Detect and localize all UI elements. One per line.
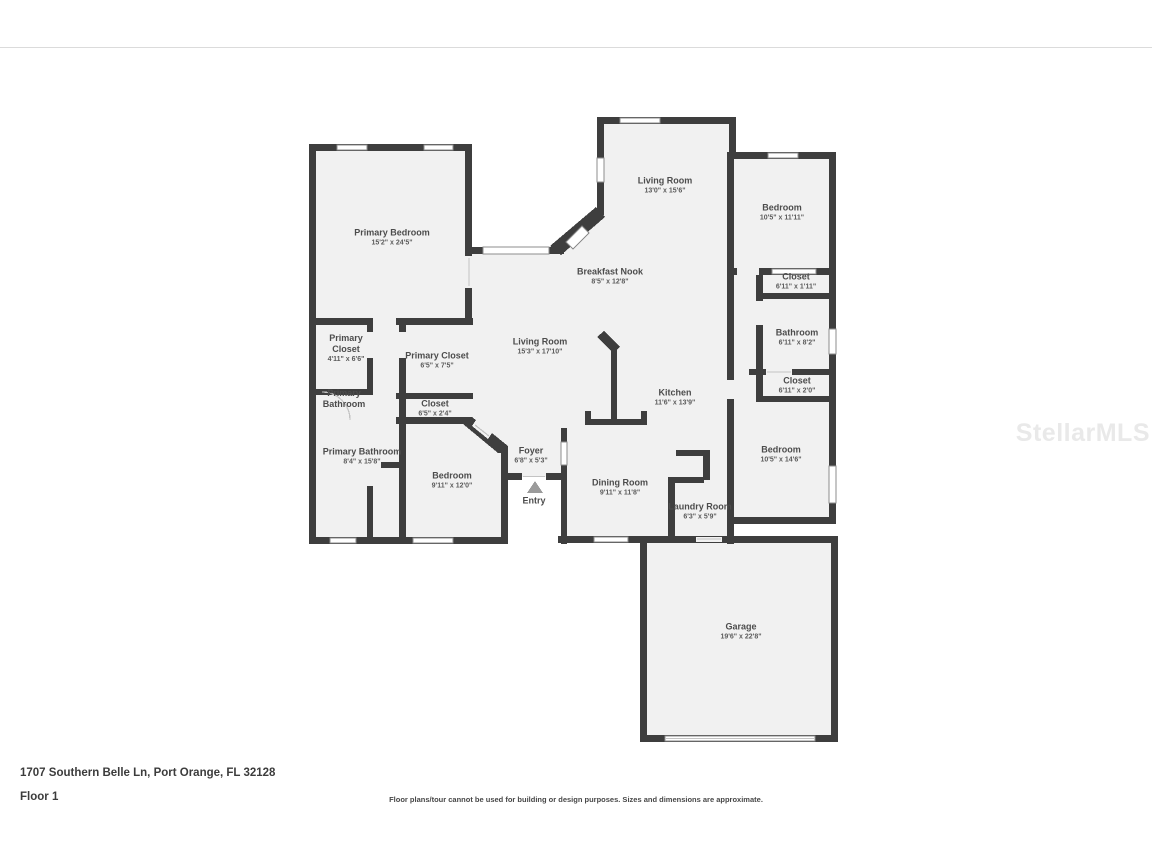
room-label-bedroom-top-right: Bedroom 10'5" x 11'11"	[760, 203, 804, 222]
address-text: 1707 Southern Belle Ln, Port Orange, FL …	[20, 767, 275, 779]
room-label-laundry-room: Laundry Room 6'3" x 5'9"	[668, 502, 732, 521]
floor-plan-drawing	[0, 0, 1152, 864]
room-label-bedroom-bottom: Bedroom 9'11" x 12'0"	[432, 471, 473, 490]
room-label-living-room-main: Living Room 15'3" x 17'10"	[513, 337, 568, 356]
room-label-primary-bedroom: Primary Bedroom 15'2" x 24'5"	[354, 228, 430, 247]
room-label-closet-small: Closet 6'5" x 2'4"	[418, 399, 451, 418]
room-label-living-room-top: Living Room 13'0" x 15'6"	[638, 176, 693, 195]
room-label-primary-bathroom-vestibule: Primary Bathroom	[312, 388, 376, 410]
room-label-foyer: Foyer 6'8" x 5'3"	[514, 446, 547, 465]
floor-plan-page: Primary Bedroom 15'2" x 24'5" Living Roo…	[0, 0, 1152, 864]
room-label-bathroom-right: Bathroom 6'11" x 8'2"	[776, 328, 819, 347]
floor-fill-layer	[312, 120, 835, 740]
stellarmls-watermark: StellarMLS	[1016, 419, 1150, 448]
room-label-primary-closet-left: Primary Closet 4'11" x 6'6"	[320, 333, 372, 363]
disclaimer-text: Floor plans/tour cannot be used for buil…	[389, 795, 763, 804]
room-label-breakfast-nook: Breakfast Nook 8'5" x 12'8"	[577, 267, 643, 286]
room-label-bedroom-right: Bedroom 10'5" x 14'6"	[760, 445, 801, 464]
room-label-closet-top-right: Closet 6'11" x 1'11"	[776, 272, 816, 291]
room-label-primary-closet-right: Primary Closet 6'5" x 7'5"	[405, 351, 469, 370]
floor-label: Floor 1	[20, 791, 58, 803]
room-label-primary-bathroom-main: Primary Bathroom 8'4" x 15'8"	[323, 447, 402, 466]
room-label-garage: Garage 19'6" x 22'8"	[720, 622, 761, 641]
room-label-dining-room: Dining Room 9'11" x 11'8"	[592, 478, 648, 497]
room-label-kitchen: Kitchen 11'6" x 13'9"	[655, 388, 696, 407]
room-label-entry: Entry	[522, 496, 545, 507]
room-label-closet-right-lower: Closet 6'11" x 2'0"	[779, 376, 816, 395]
